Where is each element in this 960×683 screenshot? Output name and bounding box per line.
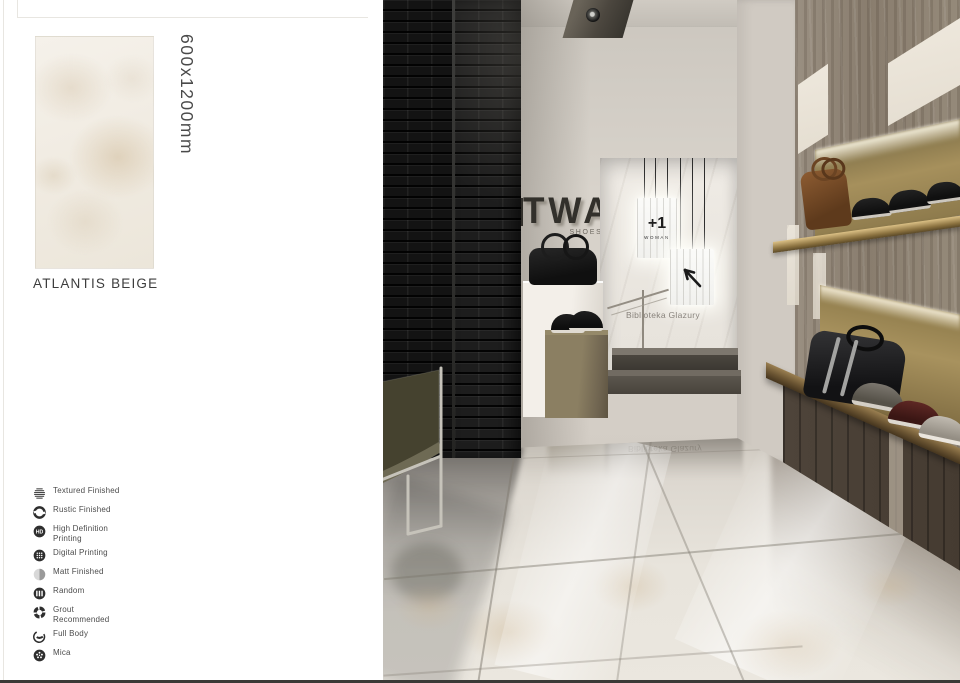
full-body-icon xyxy=(33,630,46,643)
feature-full-body: Full Body xyxy=(33,629,193,643)
grout-recommended-icon xyxy=(33,606,46,619)
svg-text:HD: HD xyxy=(36,530,44,536)
random-icon xyxy=(33,587,46,600)
feature-textured-finish: Textured Finished xyxy=(33,486,193,500)
tile-swatch xyxy=(35,36,154,269)
feature-random: Random xyxy=(33,586,193,600)
matt-finish-icon xyxy=(33,568,46,581)
handrail-post xyxy=(642,290,644,353)
marble-wall-tile xyxy=(787,225,799,305)
rustic-finish-icon xyxy=(33,506,46,519)
hanging-wire xyxy=(644,158,645,200)
product-info-panel: 600x1200mm ATLANTIS BEIGE Textured Finis… xyxy=(0,0,383,683)
hanging-wire xyxy=(680,158,681,251)
feature-grout-recommended: Grout Recommended xyxy=(33,605,193,624)
bag-handle xyxy=(563,234,589,260)
leather-bag xyxy=(800,167,853,230)
panel-frame-line-horizontal xyxy=(17,17,368,18)
mesh-chair xyxy=(383,356,463,556)
step-riser xyxy=(605,376,741,394)
lightbox-plus-one: +1 xyxy=(648,216,666,232)
textured-finish-icon xyxy=(33,487,46,500)
lightbox-woman-label: WOMAN xyxy=(644,235,670,240)
brick-wall-face-lit xyxy=(454,0,521,458)
panel-frame-line-vertical xyxy=(3,0,4,683)
hanging-wire xyxy=(692,158,693,251)
shoe-sole xyxy=(569,328,603,331)
tile-size-label: 600x1200mm xyxy=(176,34,197,155)
hd-printing-icon: HD xyxy=(33,525,46,538)
wall-watermark: Biblioteka Glazury xyxy=(626,310,721,320)
feature-mica: Mica xyxy=(33,648,193,662)
feature-hd-printing: HD High Definition Printing xyxy=(33,524,193,543)
feature-rustic-finish: Rustic Finished xyxy=(33,505,193,519)
feature-label: Mica xyxy=(53,648,71,658)
bag-strap xyxy=(822,337,841,394)
panel-frame-line-corner xyxy=(17,0,18,17)
feature-label: Digital Printing xyxy=(53,548,108,558)
bag-strap xyxy=(840,340,859,397)
hanging-wire xyxy=(704,158,705,251)
feature-digital-printing: Digital Printing xyxy=(33,548,193,562)
display-pedestal-olive xyxy=(545,330,608,418)
hanging-wire xyxy=(655,158,656,200)
feature-label: Textured Finished xyxy=(53,486,120,496)
feature-list: Textured Finished Rustic Finished HD Hig… xyxy=(33,486,193,667)
arrow-up-left-icon xyxy=(679,264,705,290)
feature-matt-finish: Matt Finished xyxy=(33,567,193,581)
digital-printing-icon xyxy=(33,549,46,562)
mica-icon xyxy=(33,649,46,662)
feature-label: Grout Recommended xyxy=(53,605,109,624)
product-name: ATLANTIS BEIGE xyxy=(33,276,158,291)
feature-label: High Definition Printing xyxy=(53,524,108,543)
feature-label: Full Body xyxy=(53,629,88,639)
lightbox-sign-arrow xyxy=(670,249,714,305)
feature-label: Rustic Finished xyxy=(53,505,111,515)
feature-label: Matt Finished xyxy=(53,567,104,577)
feature-label: Random xyxy=(53,586,84,596)
hanging-wire xyxy=(667,158,668,200)
showroom-render: TWARE SHOES & ACCESSORIES +1 WOMAN Bibli… xyxy=(383,0,960,683)
black-handbag xyxy=(529,248,597,285)
